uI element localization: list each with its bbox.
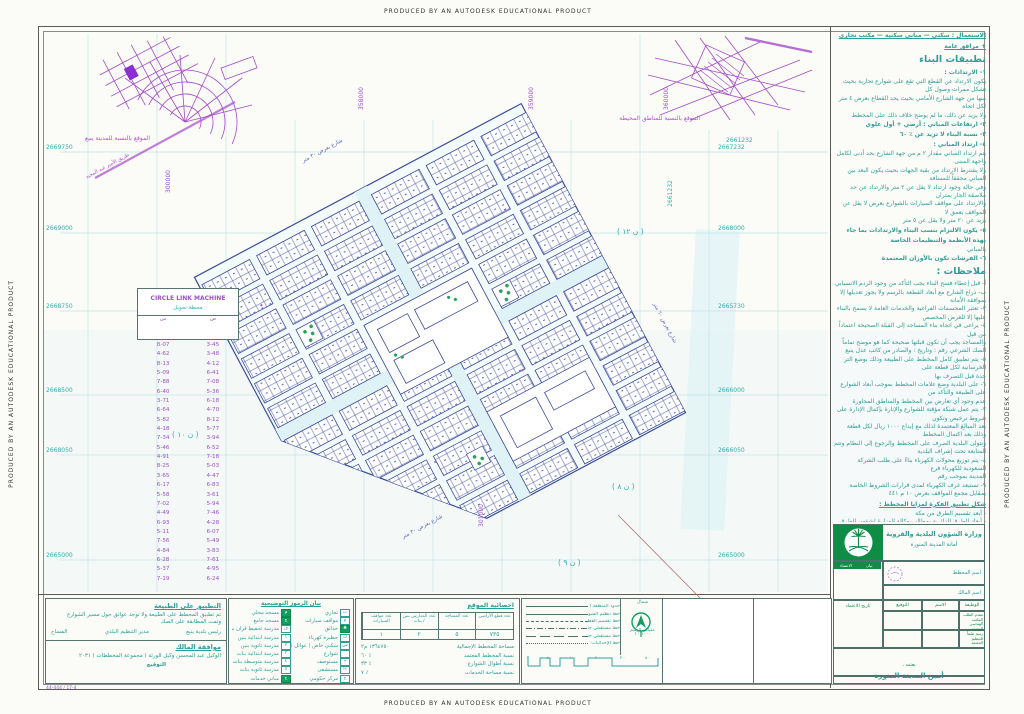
legend-symbol: ♣	[340, 625, 350, 633]
coord-row: 8-073-45	[142, 342, 234, 351]
legend-row: شوارع٣مدرسة ابتدائية بنات	[232, 650, 350, 658]
stats-line: نسبة أطوال الشوارع٪ ٣٣	[361, 660, 514, 669]
coord-row: 4-917-18	[142, 454, 234, 463]
tb-left-header-b: الاعتماد	[834, 562, 858, 569]
legend-symbol: س	[340, 642, 350, 650]
coord-row: 5-583-61	[142, 492, 234, 501]
coord-row: 7-025-94	[142, 501, 234, 510]
note-line: - أبعد تقسيم الطرق من مكة	[834, 510, 986, 518]
linetype-row: خط الإحداثيات	[526, 640, 620, 647]
legend-symbol: ج	[281, 617, 291, 625]
field-check-line1: تم تطبيق المخطط على الطبيعة ولا توجد عوا…	[46, 612, 221, 619]
note-line: ٦- الفرشات تكون بالأوزان المعتمدة	[834, 254, 986, 264]
note-line: ب- ذراع الشارع مع أبعاد القطعة بالرسم ول…	[834, 289, 986, 306]
note-line: عدم وجود أي تعارض بين المخطط والمناطق ال…	[834, 398, 986, 406]
linetype-row: خط مستقبلي خارج تنظيم الشوارع	[526, 625, 620, 632]
scanned-subdivision-plan-sheet: { "banner": {"text": "PRODUCED BY AN AUT…	[0, 0, 1024, 714]
note-line: ولا يشترط الارتداد من بقية الجهات بحيث ي…	[834, 167, 986, 184]
note-line: ٥- يكون الالتزام بنسب البناء والارتدادات…	[834, 226, 986, 246]
note-line: والمساجد يجب أن تكون قبلتها صحيحة كما هو…	[834, 339, 986, 347]
note-line: ٥- يتم تطبيق كامل المخطط على الطبيعة وذل…	[834, 356, 986, 373]
note-line: منها من جهة الشارع الأمامي بحيث يحد القط…	[834, 95, 986, 112]
note-line: شكل تطبيق الفكرة لمزايا المخطط :	[834, 499, 986, 510]
north-cell: شمال مقياس الرسم ١٠٠٠ : ١	[620, 599, 664, 655]
coord-table-box: CIRCLE LINK MACHINE محطة تحويل س ص	[137, 288, 239, 340]
legend-symbol: خ	[281, 675, 291, 683]
coord-row: 5-828-12	[142, 417, 234, 426]
scale-value: ١٠٠٠ : ١	[621, 632, 664, 637]
note-line: ١- الارتدادات :	[834, 68, 986, 78]
title-block: الاعتماد بيان تاريخ الاعتماد يعتمد ، أمي…	[833, 561, 985, 684]
inset-surrounding-caption: الموقع بالنسبة للمناطق المحيطة	[619, 115, 700, 122]
tb-row-label-2: رسم طبقاً للتنظيم المعتمد	[959, 630, 985, 648]
ministry-block-border	[833, 524, 985, 561]
note-line: أ- قبل إعطاء فسح البناء يجب التأكد من وج…	[834, 280, 986, 288]
coord-table-title: CIRCLE LINK MACHINE	[138, 295, 238, 302]
coord-row: 4-843-83	[142, 548, 234, 557]
legend-symbol: ١	[281, 634, 291, 642]
note-line: ٩- تستبعد غرف الكهرباء لمدى قرارات الشرو…	[834, 482, 986, 499]
note-line: بعد المبالغ المعتمدة لذلك مع إيداع ١٠٠٠ …	[834, 423, 986, 440]
coord-table-subtitle: محطة تحويل	[138, 305, 238, 311]
legend-symbol	[340, 650, 350, 658]
coord-row: 6-287-61	[142, 557, 234, 566]
linetype-row: خط تقسيم القطع السكنية المعتمدة	[526, 618, 620, 625]
legend-symbol: م	[281, 609, 291, 617]
note-line: ٣- تعتبر المجسمات الفراغية والخدمات العا…	[834, 305, 986, 322]
coord-row: 4-623-48	[142, 351, 234, 360]
stats-line: نسبة مساحة الخدمات٪ ٧	[361, 669, 514, 678]
tb-date-label: تاريخ الاعتماد	[834, 604, 882, 609]
coord-row: 3-716-18	[142, 398, 234, 407]
legend-symbol: +	[340, 658, 350, 666]
inset-surrounding-map	[648, 36, 812, 120]
note-line: المدينة بموجب رقم	[834, 473, 986, 481]
linetype-row: خط تنظيم الشوارع والمرافق	[526, 610, 620, 617]
owner-sign-label: التوقيع	[46, 662, 166, 669]
legend-row: كحظيرة كهرباء١مدرسة ابتدائية بنين	[232, 634, 350, 642]
coord-row: 8-255-03	[142, 463, 234, 472]
scale-ticks: ٠٥٠١٠٠٢٠٠٣٠٠٥٠٠	[526, 655, 660, 660]
coord-row: 7-343-94	[142, 435, 234, 444]
legend-row: ♣حدائققمدرسة تحفيظ قرآن بنين	[232, 625, 350, 633]
note-line: يكون الارتداد عن القطع التي تقع على شوار…	[834, 78, 986, 95]
sig-planning-director: مدير التنظيم البلدي	[105, 629, 149, 636]
stats-box: احصائية الموقع عدد قطع الأراضيعدد المساج…	[355, 598, 520, 684]
legend-symbol: ت	[340, 609, 350, 617]
tb-col-name: الاسم	[922, 600, 959, 611]
note-line: ٦- على البلدية وضع علامات المخطط بموجب أ…	[834, 381, 986, 398]
note-line: ملاحظات :	[834, 264, 986, 280]
tb-plan-name-label: اسم المخطط	[953, 570, 981, 576]
inset-city-map	[94, 21, 257, 178]
empty-panel-2	[753, 598, 832, 684]
inset-city-caption: الموقع بالنسبة للمدينة ينبع	[85, 135, 150, 142]
notes-panel: الاستعمال : سكني — مباني سكنية — مكتب تج…	[834, 30, 986, 522]
coord-row: 4-497-46	[142, 510, 234, 519]
tb-left-header-a: بيان	[858, 562, 883, 569]
coord-col-a: س	[160, 316, 166, 322]
note-line: ٢- ارتفاعات المباني : أرضي + أول علوي	[834, 120, 986, 130]
legend-symbol: ٣	[281, 650, 291, 658]
note-line: تطبيقات البناء	[834, 52, 986, 68]
note-line: ٧- يتم عمل شبكة مؤقتة للشوارع والإنارة ب…	[834, 406, 986, 423]
field-check-title: التطبيق على الطبيعة	[46, 602, 221, 610]
tb-row-label-1: مقدم الطلب المكتب الهندسي المعتمد	[959, 611, 985, 630]
note-line: الصك الشرعي رقم : وتاريخ : والصادر من كا…	[834, 347, 986, 355]
stats-line: مساحة المخطط الإجمالية١٣٦٤٧٥٠ م٢	[361, 643, 514, 652]
inset-surrounding-coord: 2661232	[726, 137, 753, 144]
note-line: - أبعاد الطرق الدائرية بمطالب وكالة الوز…	[834, 518, 986, 522]
legend-row: ممواقف سياراتجمسجد جامع	[232, 617, 350, 625]
note-line: بالمباني	[834, 246, 986, 254]
tb-col-job: الوظيفة	[959, 600, 985, 611]
coord-row: 3-654-47	[142, 473, 234, 482]
note-line: ٣- نسبة البناء لا تزيد عن ٪ ٦٠	[834, 130, 986, 140]
legend-symbol: م	[340, 617, 350, 625]
note-line: ٤- يراعى في اتجاه بناء المساجد إلى القبل…	[834, 322, 986, 339]
sig-surveyor: المساح	[51, 629, 68, 636]
note-line: حدة قبل التصرف بها	[834, 373, 986, 381]
tb-col-sig: التوقيع	[883, 600, 922, 611]
note-line: والارتداد على مواقف السيارات بالشوارع بع…	[834, 200, 986, 217]
note-line: يزيد عن ٢٠ متر ولا يقل عن ٥ متر	[834, 217, 986, 225]
coord-row: 5-096-41	[142, 370, 234, 379]
coord-row: 6-644-70	[142, 407, 234, 416]
owner-approval-line: الوكيل عبد المحسن وكيل الورثة ( مجموعة ا…	[46, 653, 221, 660]
linetype-row: حدود المنطقة ( حسب الصك )	[526, 603, 620, 610]
note-line: وفي حالة وجود ارتداد لا يقل عن ٢ متر وال…	[834, 184, 986, 201]
inset-city-highlight-parcel	[124, 64, 139, 80]
coord-row: 8-134-12	[142, 361, 234, 370]
tb-owner-label: اسم المالك	[957, 590, 981, 596]
coord-row: 7-565-49	[142, 538, 234, 547]
coord-row: 5-466-52	[142, 445, 234, 454]
note-line: ولا يزيد عن ذلك، ما لم يوضح خلاف ذلك على…	[834, 112, 986, 120]
stats-line: نسبة المخطط المعتمد٪ ٦٠	[361, 652, 514, 661]
coord-row: 6-176-83	[142, 482, 234, 491]
inset-city-road-label: طريق الأمير عبد المجيد	[84, 151, 130, 180]
legend-symbol: ٢	[281, 642, 291, 650]
legend-row: حمركز حكوميخمباني خدمات	[232, 675, 350, 683]
coord-col-b: ص	[210, 316, 216, 322]
tb-approve-small: يعتمد ،	[903, 663, 916, 668]
legend-row: سسكني خاص ( عوائل )٢مدرسة ثانوية بنين	[232, 642, 350, 650]
legend-symbol: ٥	[281, 666, 291, 674]
legend-symbol: ٤	[281, 658, 291, 666]
note-line: الاستعمال : سكني — مباني سكنية — مكتب تج…	[834, 30, 986, 52]
owner-approval-title: موافقة المالك	[46, 643, 221, 651]
legend-row: Hمستشفى٥مدرسة ثانوية بنات	[232, 666, 350, 674]
coord-row: 4-185-77	[142, 426, 234, 435]
note-line: ٤- ارتداد المباني :	[834, 140, 986, 150]
note-line: ٨- يتم توزيع محولات الكهرباء بناءً على ط…	[834, 457, 986, 474]
note-line: وتتولى البلدية الصرف على المخطط والرجوع …	[834, 440, 986, 457]
field-check-box: التطبيق على الطبيعة تم تطبيق المخطط على …	[45, 598, 227, 684]
legend-row: تتجاريممسجد محلي	[232, 609, 350, 617]
legend-symbol: ك	[340, 634, 350, 642]
coord-row: 7-887-08	[142, 379, 234, 388]
coord-table-rows: 8-073-454-623-488-134-125-096-417-887-08…	[142, 342, 234, 585]
sig-mayor-yanbu: رئيس بلدية ينبع	[186, 629, 221, 636]
note-line: يتم ارتداد المباني مقدار ٢ م من جهة الشا…	[834, 150, 986, 167]
stats-title: احصائية الموقع	[356, 602, 514, 609]
legend-box: بيان الرموز التوضيحية تتجاريممسجد محليمم…	[228, 598, 354, 684]
linetype-box: حدود المنطقة ( حسب الصك )خط تنظيم الشوار…	[521, 598, 664, 684]
coord-row: 7-196-24	[142, 576, 234, 585]
coord-row: 5-374-95	[142, 566, 234, 575]
legend-row: +مستوصف٤مدرسة متوسطة بنات	[232, 658, 350, 666]
coord-row: 5-116-07	[142, 529, 234, 538]
plot-footnote: 44-444 / 17-4	[46, 686, 77, 691]
legend-symbol: ح	[340, 675, 350, 683]
field-check-line2: وتمت المطابقة على الصك	[46, 619, 221, 626]
coord-row: 6-934-28	[142, 520, 234, 529]
coord-row: 6-405-36	[142, 389, 234, 398]
legend-symbol: ق	[281, 625, 291, 633]
empty-panel-1	[662, 598, 755, 684]
linetype-row: خط مستقبلي خارج تنظيم القطع السكنية	[526, 633, 620, 640]
legend-symbol: H	[340, 666, 350, 674]
